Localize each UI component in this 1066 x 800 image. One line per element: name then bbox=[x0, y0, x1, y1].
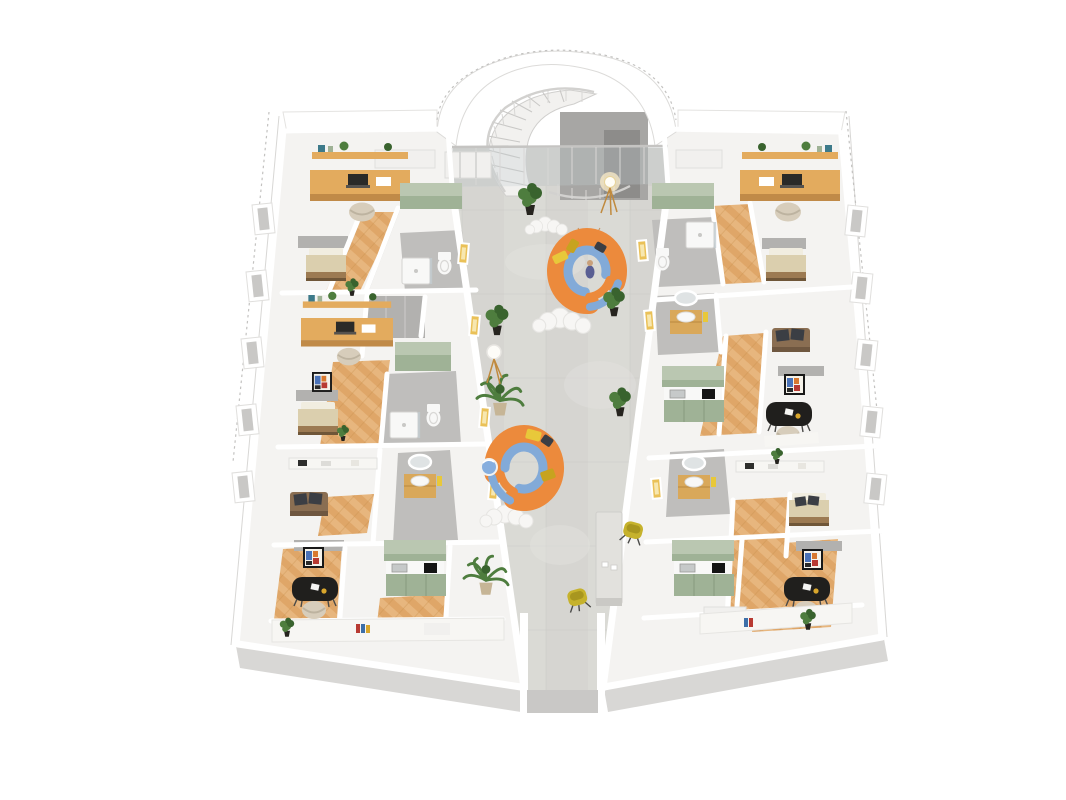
art-L2 bbox=[312, 372, 332, 392]
window-bay bbox=[252, 203, 275, 235]
brown-sofa-L3 bbox=[290, 492, 328, 516]
sage-bench bbox=[395, 355, 451, 371]
headboard-wall-R1 bbox=[762, 238, 806, 249]
dark-cushion bbox=[807, 495, 819, 505]
vestibule-front-face bbox=[520, 690, 605, 713]
sage-sideboard-top-R1 bbox=[652, 183, 714, 196]
niche bbox=[468, 314, 481, 337]
vestibule-floor bbox=[527, 617, 598, 690]
kitchen-L4 bbox=[384, 540, 446, 596]
window-bay bbox=[241, 337, 264, 369]
kitchen-R4 bbox=[672, 540, 734, 596]
niche bbox=[478, 406, 491, 429]
headboard-wall bbox=[298, 236, 348, 248]
seated-figure bbox=[586, 266, 595, 279]
niche bbox=[636, 239, 649, 262]
bed-L2 bbox=[298, 402, 338, 435]
window-bay bbox=[845, 205, 868, 237]
window-bay bbox=[232, 471, 255, 503]
brown-sofa-R2 bbox=[772, 328, 810, 352]
dark-cushion bbox=[794, 496, 806, 506]
sage-bench-top bbox=[395, 342, 451, 355]
sage-sideboard-top bbox=[400, 183, 462, 196]
window-bay bbox=[246, 270, 269, 302]
toilet-L2 bbox=[427, 404, 441, 427]
balustrade-rail bbox=[452, 146, 668, 147]
upper-cabinets-R1 bbox=[676, 150, 722, 168]
bed-L1 bbox=[306, 248, 346, 281]
window-bay bbox=[855, 339, 878, 371]
console-R3 bbox=[736, 461, 824, 472]
bed-R1 bbox=[766, 248, 806, 281]
window-bay bbox=[860, 406, 883, 438]
niche bbox=[643, 309, 656, 332]
niche bbox=[650, 477, 663, 500]
shower-R1 bbox=[686, 222, 715, 248]
bench-books bbox=[356, 624, 360, 633]
toilet-L1 bbox=[438, 252, 452, 275]
sage-sideboard bbox=[400, 196, 462, 209]
table-cup bbox=[602, 562, 608, 567]
window-bay bbox=[864, 473, 887, 505]
long-table bbox=[596, 512, 622, 604]
stairwell-atrium bbox=[437, 50, 676, 201]
niche bbox=[457, 242, 470, 265]
art-R4 bbox=[802, 549, 823, 570]
curved-sofa-top bbox=[552, 228, 625, 316]
side-table bbox=[481, 459, 497, 475]
art-L4 bbox=[303, 547, 324, 568]
shower-L2 bbox=[390, 412, 419, 438]
window-bench-left bbox=[272, 618, 504, 642]
floorplan-scene bbox=[0, 0, 1066, 800]
floorplan-render-canvas bbox=[0, 0, 1066, 800]
kitchen-R2 bbox=[662, 366, 724, 422]
sage-sideboard-R1 bbox=[652, 196, 714, 209]
toilet-R1 bbox=[656, 248, 670, 271]
window-bay bbox=[236, 404, 259, 436]
console-L3 bbox=[289, 458, 377, 469]
shower-L1 bbox=[402, 258, 431, 284]
bench-books bbox=[744, 618, 748, 627]
art-R2 bbox=[784, 374, 805, 395]
